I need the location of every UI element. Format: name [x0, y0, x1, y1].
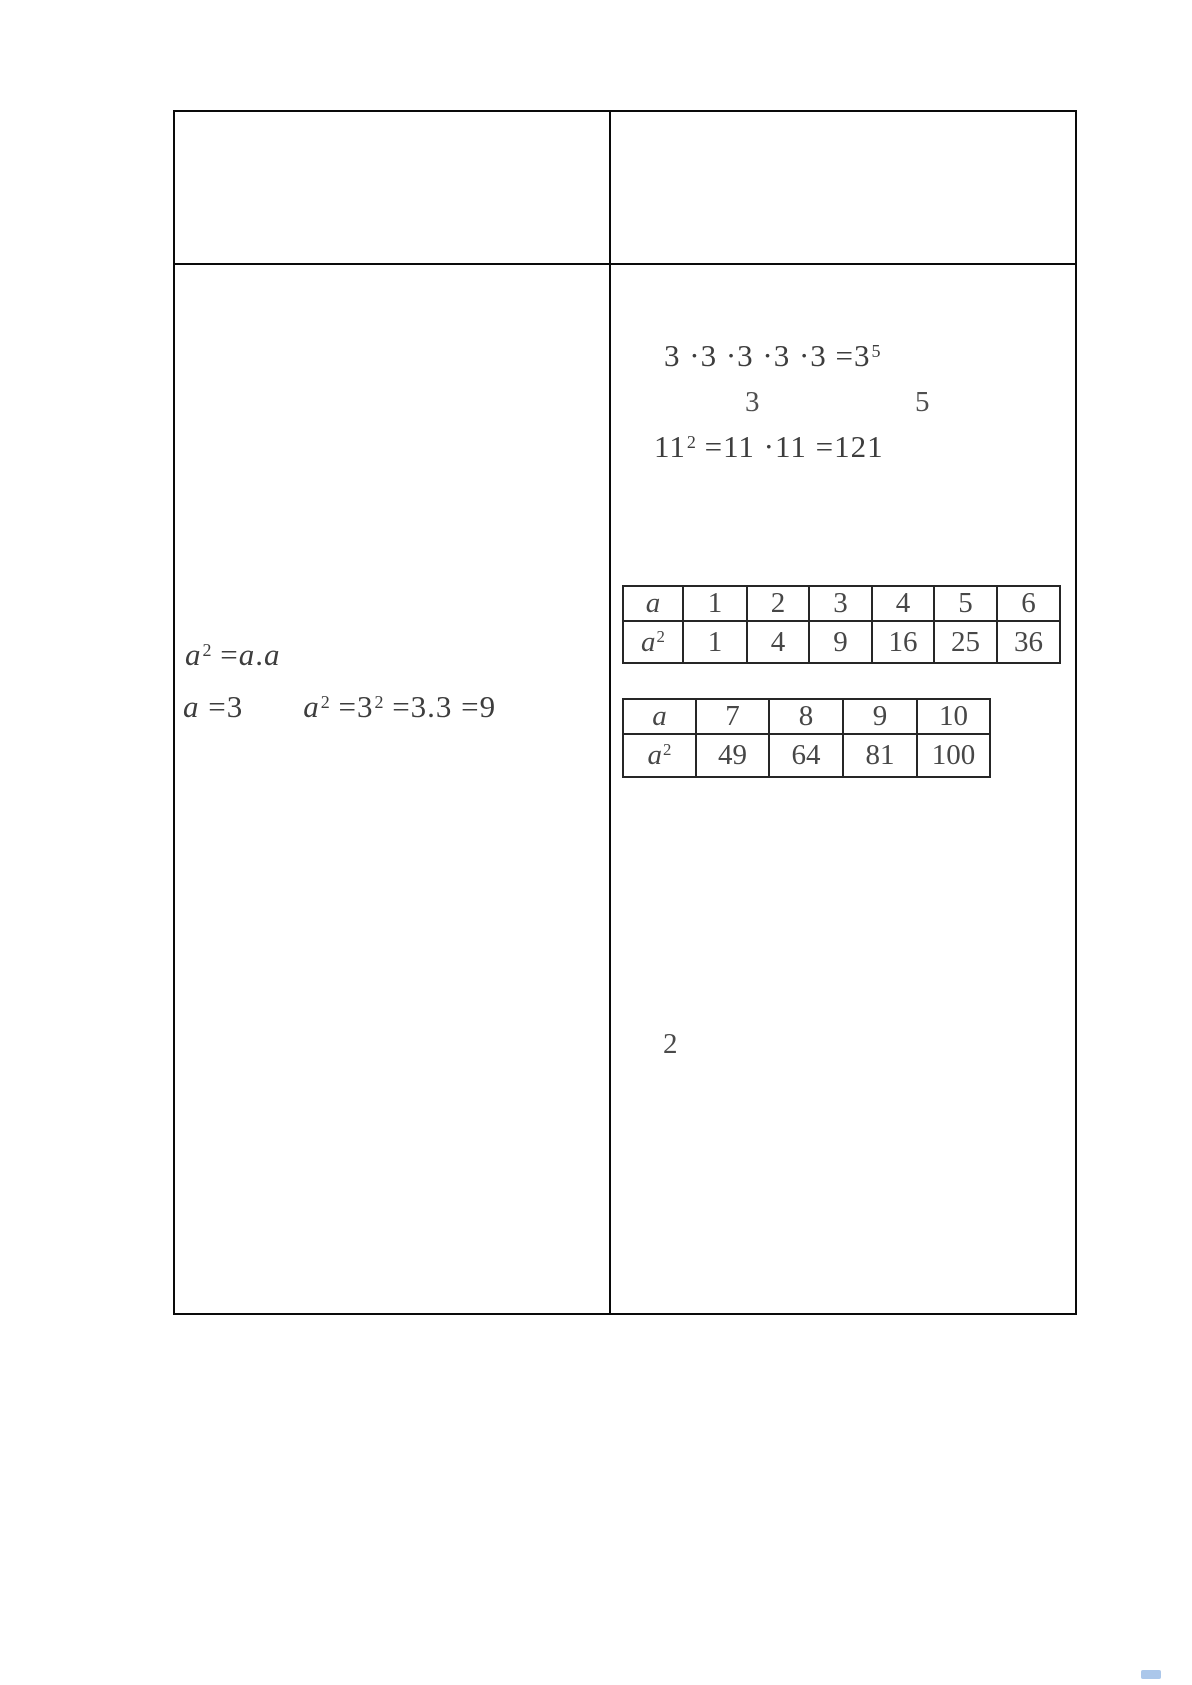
- squares-table-7-to-10: a78910a2496481100: [622, 698, 991, 778]
- square-definition-formula: a2 =a.a: [185, 637, 280, 673]
- base-label: 3: [745, 386, 760, 419]
- table-cell: 64: [769, 734, 843, 777]
- body-cell-left: a2 =a.a a =3a2 =32 =3.3 =9: [175, 265, 609, 1313]
- example-expansion-formula: a2 =32 =3.3 =9: [303, 689, 496, 724]
- table-cell: 8: [769, 699, 843, 734]
- square-example-line: a =3a2 =32 =3.3 =9: [183, 689, 496, 725]
- table-row: a123456: [623, 586, 1060, 621]
- example-value-formula: a =3: [183, 689, 243, 724]
- table-cell: 4: [747, 621, 809, 663]
- exponent-label: 5: [915, 386, 930, 419]
- table-cell: 36: [997, 621, 1060, 663]
- table-cell: 2: [747, 586, 809, 621]
- table-cell: 1: [683, 586, 747, 621]
- eleven-squared-formula: 112 =11 ·11 =121: [654, 429, 884, 465]
- table-cell: a: [623, 699, 696, 734]
- table-cell: 81: [843, 734, 917, 777]
- header-cell-right: [611, 112, 1075, 263]
- document-page: a2 =a.a a =3a2 =32 =3.3 =9 3 ·3 ·3 ·3 ·3…: [0, 0, 1192, 1685]
- body-cell-right: 3 ·3 ·3 ·3 ·3 =35 3 5 112 =11 ·11 =121 a…: [611, 265, 1075, 1313]
- table-cell: 4: [872, 586, 934, 621]
- table-cell: 16: [872, 621, 934, 663]
- table-cell: a: [623, 586, 683, 621]
- table-cell: 5: [934, 586, 997, 621]
- table-cell: 100: [917, 734, 990, 777]
- table-cell: 10: [917, 699, 990, 734]
- stray-number: 2: [663, 1028, 678, 1061]
- table-cell: 6: [997, 586, 1060, 621]
- table-cell: 49: [696, 734, 769, 777]
- table-row: a2149162536: [623, 621, 1060, 663]
- table-cell: a2: [623, 734, 696, 777]
- table-cell: 7: [696, 699, 769, 734]
- table-cell: 3: [809, 586, 872, 621]
- page-corner-artifact: [1141, 1670, 1161, 1679]
- table-row: a78910: [623, 699, 990, 734]
- table-row: a2496481100: [623, 734, 990, 777]
- header-cell-left: [175, 112, 609, 263]
- table-cell: 25: [934, 621, 997, 663]
- table-cell: 9: [809, 621, 872, 663]
- table-cell: 9: [843, 699, 917, 734]
- content-table: a2 =a.a a =3a2 =32 =3.3 =9 3 ·3 ·3 ·3 ·3…: [173, 110, 1077, 1315]
- table-cell: 1: [683, 621, 747, 663]
- table-cell: a2: [623, 621, 683, 663]
- squares-table-1-to-6: a123456a2149162536: [622, 585, 1061, 664]
- power-notation-formula: 3 ·3 ·3 ·3 ·3 =35: [664, 338, 881, 374]
